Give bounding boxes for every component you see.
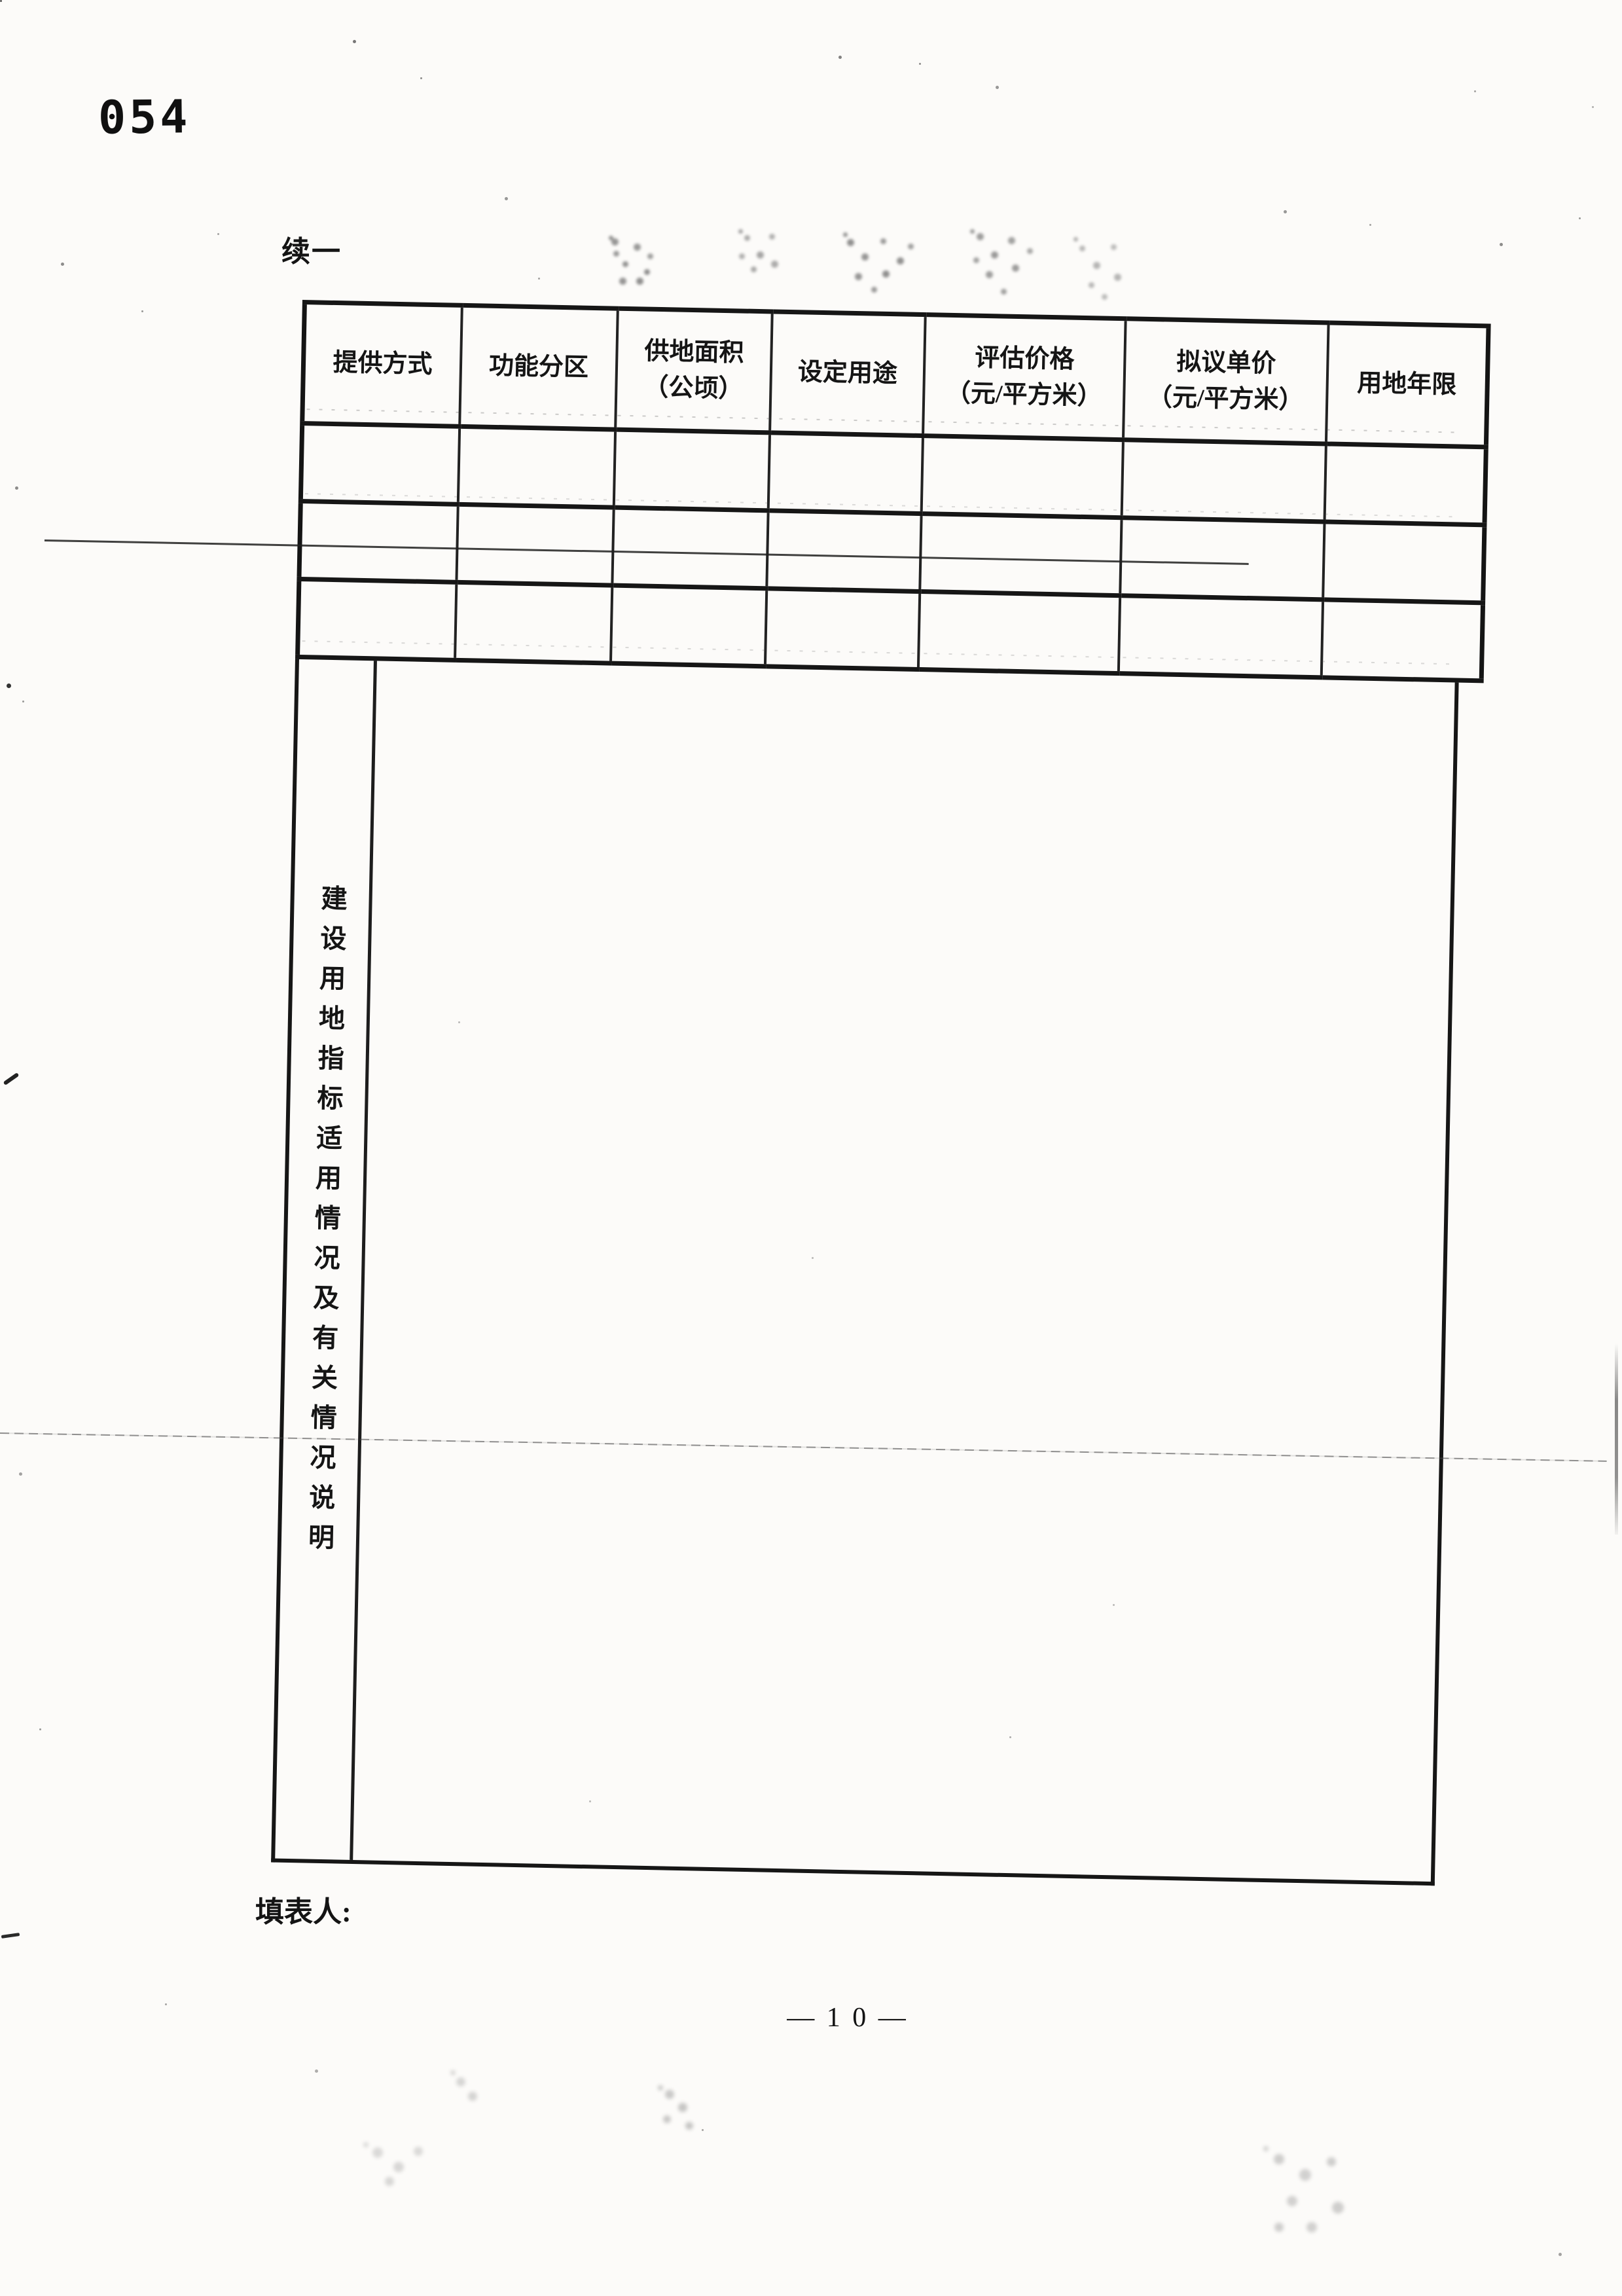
- illegible-title-smudge: [738, 229, 743, 234]
- illegible-title-smudge: [609, 236, 613, 240]
- form-filler-label: 填表人:: [255, 1888, 351, 1930]
- empty-cell: [918, 592, 1120, 674]
- empty-cell: [1119, 596, 1323, 678]
- margin-dash-mark: [1, 1933, 20, 1939]
- page-stamp-number: 054: [98, 90, 191, 144]
- margin-dot-mark: [7, 683, 11, 688]
- empty-cell: [298, 579, 457, 660]
- empty-cell: [611, 585, 766, 666]
- remarks-section-label: 建设用地指标适用情况及有关情况说明: [299, 884, 351, 1563]
- empty-cell: [614, 429, 770, 511]
- empty-cell: [300, 424, 460, 505]
- empty-cell: [768, 433, 923, 514]
- empty-cell: [612, 507, 768, 589]
- faint-smudge: [363, 2142, 369, 2147]
- illegible-title-smudge: [843, 232, 848, 237]
- faint-smudge: [450, 2070, 456, 2075]
- land-supply-table: 提供方式 功能分区 供地面积 （公顷） 设定用途 评估价格 （元/平方米） 拟议…: [295, 300, 1491, 683]
- faint-smudge: [658, 2085, 663, 2090]
- form-table-block: 提供方式 功能分区 供地面积 （公顷） 设定用途 评估价格 （元/平方米） 拟议…: [271, 300, 1466, 1886]
- scanned-form-page: 054 续一 提供方式 功能分区 供地面积 （公顷） 设定用途 评估价格 （元/…: [0, 0, 1622, 2296]
- empty-cell: [920, 514, 1121, 596]
- col-header-designated-use: 设定用途: [770, 312, 926, 436]
- header-row: 提供方式 功能分区 供地面积 （公顷） 设定用途 评估价格 （元/平方米） 拟议…: [302, 302, 1488, 447]
- col-header-land-use-term: 用地年限: [1326, 323, 1488, 447]
- col-header-provision-method: 提供方式: [302, 302, 462, 427]
- remarks-section-blank-area: [353, 661, 1454, 1882]
- scan-noise-speckles: [0, 0, 2, 2]
- empty-cell: [922, 436, 1123, 518]
- empty-cell: [1322, 600, 1483, 681]
- illegible-title-smudge: [1073, 237, 1078, 242]
- empty-cell: [765, 589, 920, 670]
- page-number: — 1 0 —: [753, 2002, 943, 2033]
- remarks-section: 建设用地指标适用情况及有关情况说明: [271, 659, 1459, 1886]
- empty-cell: [458, 426, 615, 507]
- margin-tick-mark: [3, 1072, 20, 1085]
- empty-cell: [1120, 518, 1324, 600]
- scan-edge-artifact: [1615, 1343, 1618, 1535]
- illegible-title-smudge: [970, 229, 975, 234]
- empty-cell: [456, 504, 613, 585]
- empty-cell: [1323, 522, 1485, 603]
- col-header-functional-zone: 功能分区: [460, 305, 618, 429]
- empty-cell: [455, 582, 612, 663]
- empty-cell: [1325, 444, 1487, 525]
- continuation-label: 续一: [281, 228, 342, 270]
- faint-smudge: [1263, 2146, 1269, 2151]
- empty-cell: [299, 501, 458, 583]
- empty-cell: [766, 511, 921, 592]
- col-header-land-area: 供地面积 （公顷）: [615, 308, 772, 433]
